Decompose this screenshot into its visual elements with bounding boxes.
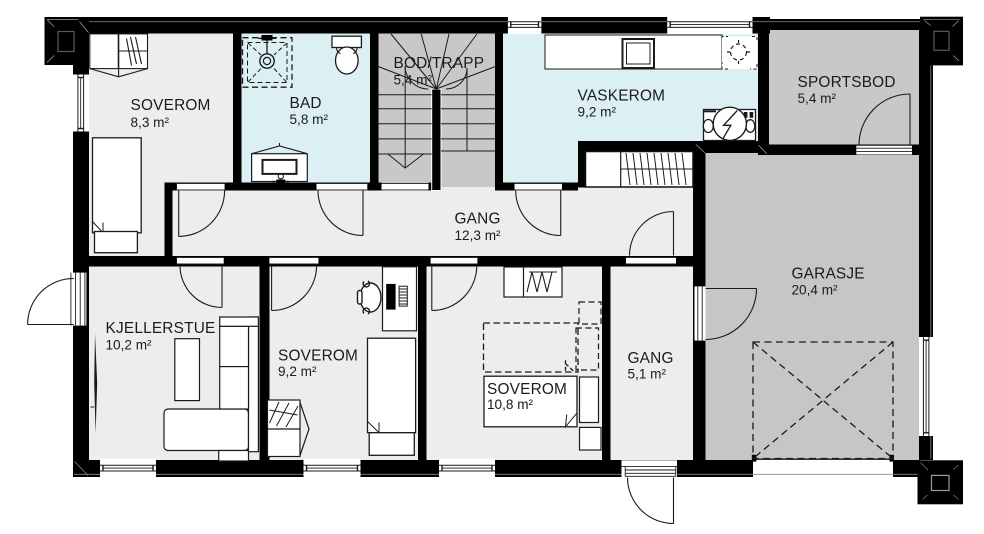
svg-text:10,8 m²: 10,8 m² — [487, 397, 534, 412]
svg-text:5,4 m²: 5,4 m² — [798, 91, 837, 106]
svg-text:SPORTSBOD: SPORTSBOD — [798, 74, 896, 91]
svg-text:10,2 m²: 10,2 m² — [106, 338, 153, 353]
svg-text:GANG: GANG — [455, 211, 501, 228]
svg-text:5,1 m²: 5,1 m² — [628, 367, 667, 382]
svg-text:12,3 m²: 12,3 m² — [455, 228, 502, 243]
svg-text:BAD: BAD — [290, 95, 322, 112]
svg-text:5,4 m²: 5,4 m² — [394, 73, 433, 88]
svg-text:5,8 m²: 5,8 m² — [290, 112, 329, 127]
svg-text:SOVEROM: SOVEROM — [278, 348, 358, 365]
svg-text:KJELLERSTUE: KJELLERSTUE — [106, 320, 216, 337]
svg-text:BOD/TRAPP: BOD/TRAPP — [394, 55, 485, 72]
svg-text:8,3 m²: 8,3 m² — [131, 115, 170, 130]
svg-text:GARASJE: GARASJE — [792, 266, 865, 283]
svg-text:9,2 m²: 9,2 m² — [578, 105, 617, 120]
svg-text:VASKEROM: VASKEROM — [578, 88, 666, 105]
svg-text:9,2 m²: 9,2 m² — [278, 364, 317, 379]
svg-text:GANG: GANG — [628, 350, 674, 367]
svg-text:20,4 m²: 20,4 m² — [792, 283, 839, 298]
svg-text:SOVEROM: SOVEROM — [487, 381, 567, 398]
svg-text:SOVEROM: SOVEROM — [131, 97, 211, 114]
